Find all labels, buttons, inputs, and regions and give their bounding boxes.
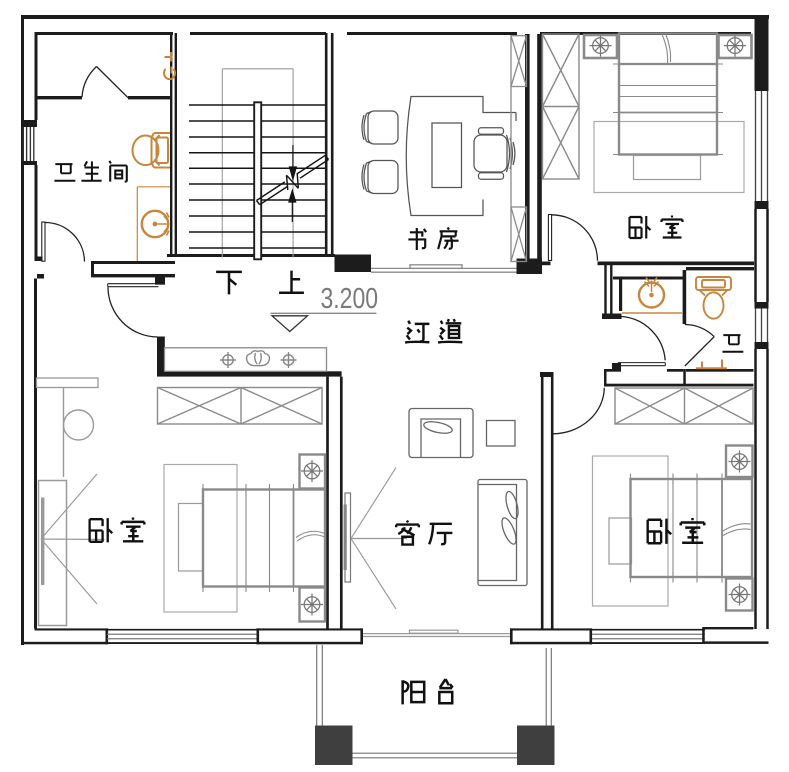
svg-text:3.200: 3.200 bbox=[321, 283, 379, 315]
